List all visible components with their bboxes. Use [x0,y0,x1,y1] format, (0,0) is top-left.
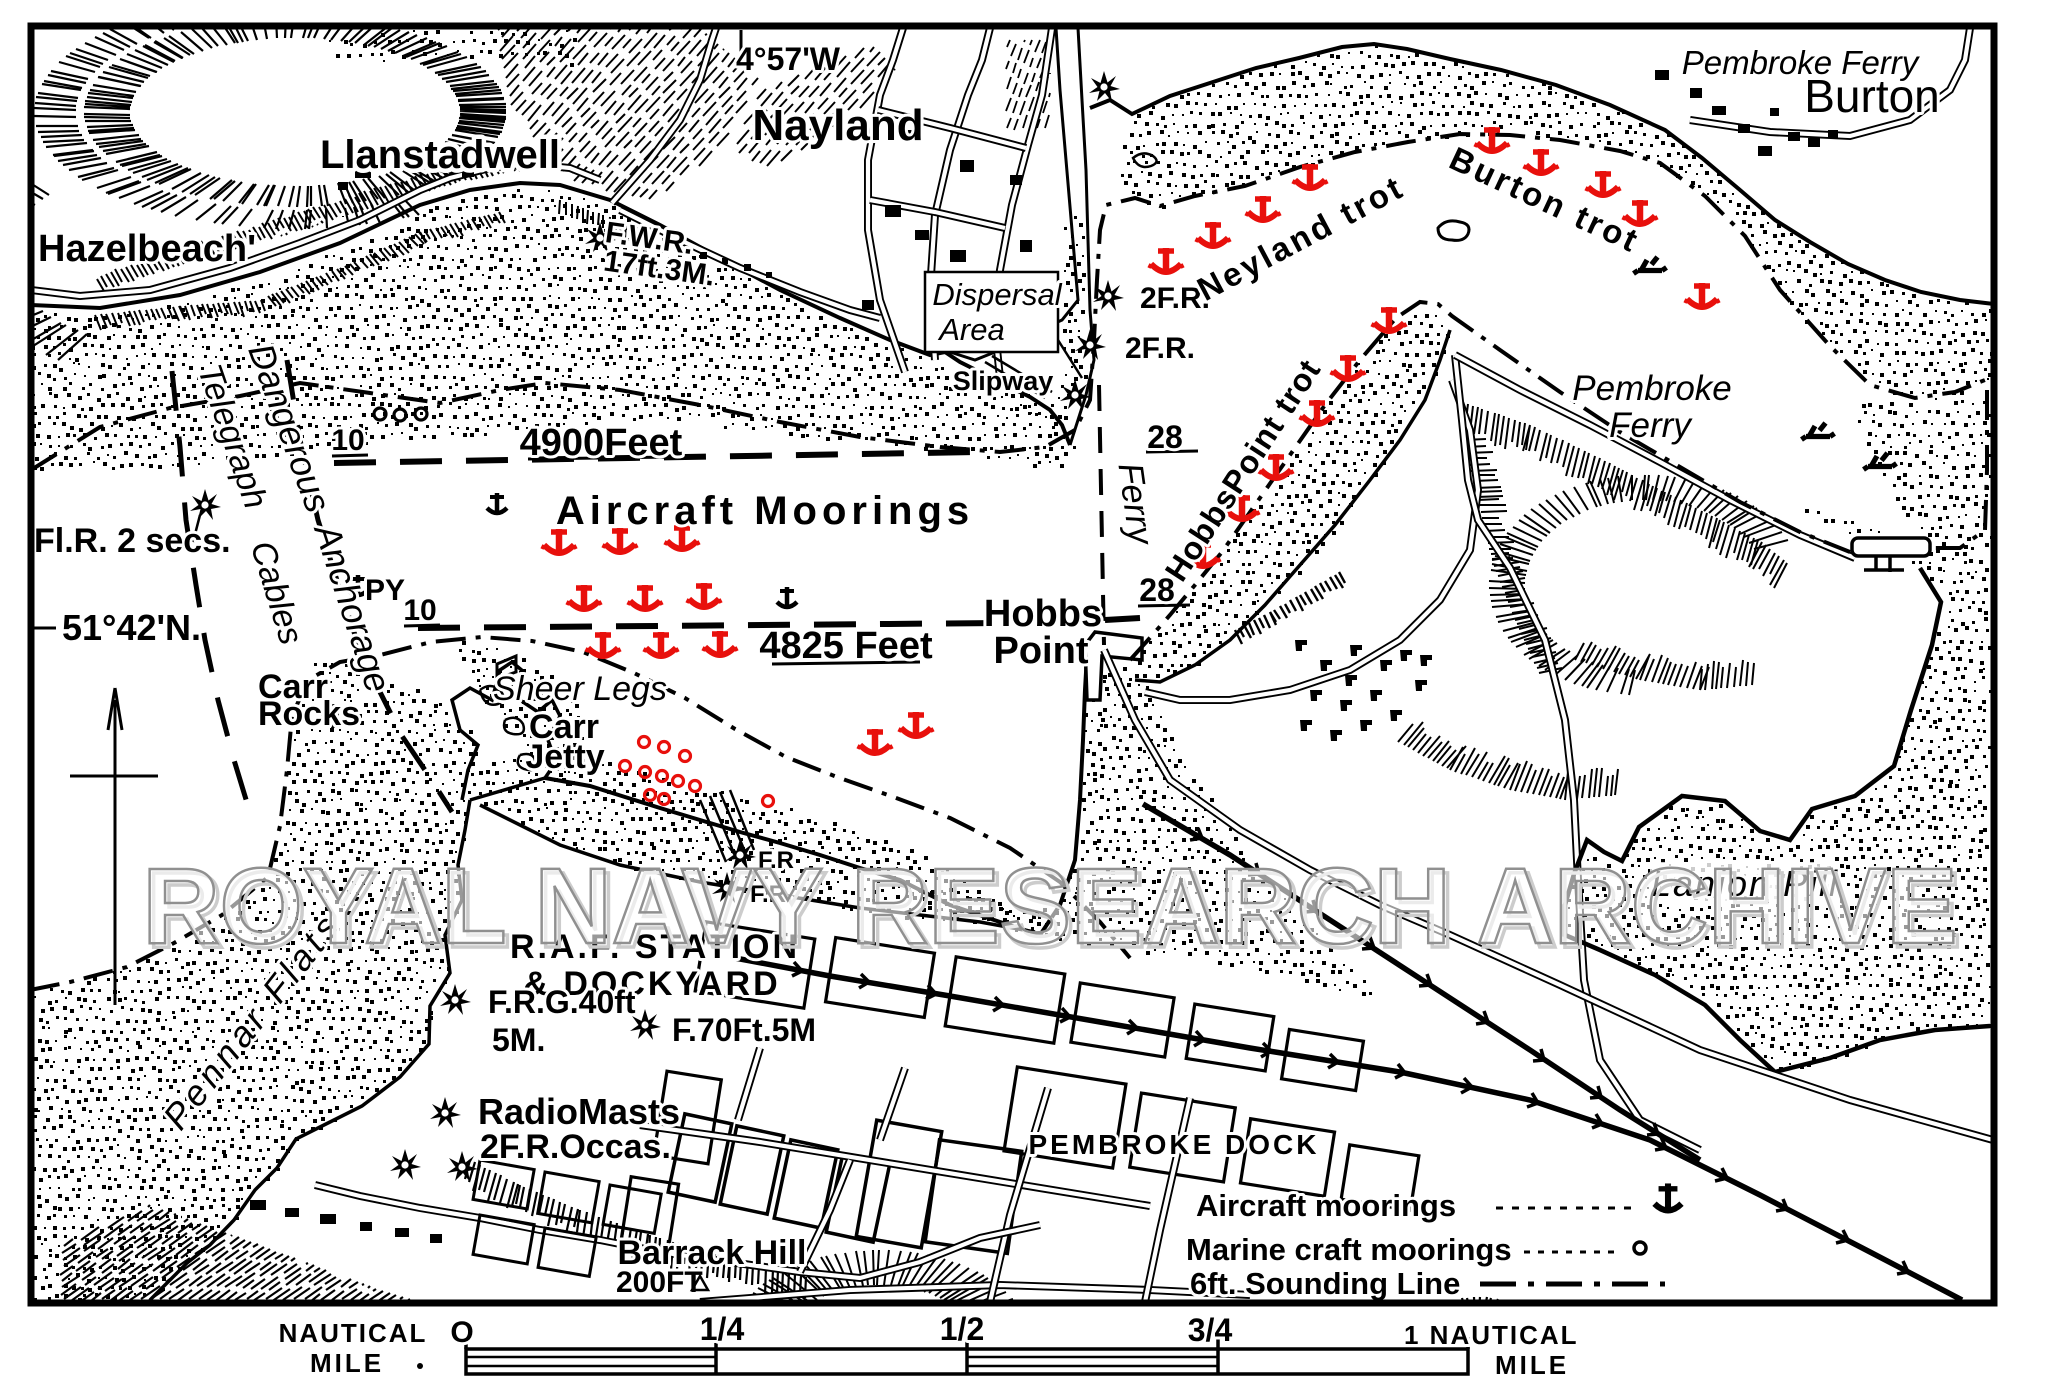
svg-text:Burton: Burton [1804,70,1940,122]
svg-text:MILE: MILE [1495,1350,1569,1380]
svg-text:4900Feet: 4900Feet [520,422,683,464]
svg-text:1 NAUTICAL: 1 NAUTICAL [1404,1320,1579,1350]
svg-text:Fl.R. 2 secs.: Fl.R. 2 secs. [34,522,231,560]
svg-text:28: 28 [1147,419,1183,455]
svg-text:1/4: 1/4 [700,1311,745,1347]
svg-text:F.70Ft.5M: F.70Ft.5M [672,1012,816,1048]
svg-text:200FT: 200FT [616,1266,703,1299]
svg-text:RadioMasts: RadioMasts [478,1091,680,1132]
svg-text:5M.: 5M. [492,1022,545,1058]
svg-text:Jetty: Jetty [525,738,604,776]
svg-text:F.R.G.40ft: F.R.G.40ft [488,984,636,1020]
svg-text:Pembroke: Pembroke [1572,369,1732,408]
svg-text:Area: Area [937,312,1004,347]
svg-text:Rocks: Rocks [258,695,360,733]
svg-text:Slipway: Slipway [953,366,1054,396]
svg-text:6ft. Sounding Line: 6ft. Sounding Line [1190,1266,1460,1301]
svg-text:10: 10 [403,594,436,627]
svg-text:Marine craft moorings: Marine craft moorings [1186,1232,1512,1267]
svg-text:PEMBROKE DOCK: PEMBROKE DOCK [1028,1129,1319,1160]
svg-text:Ferry: Ferry [1609,406,1693,445]
svg-text:4°57'W: 4°57'W [736,41,841,77]
svg-text:NAUTICAL: NAUTICAL [279,1318,428,1348]
svg-text:ROYAL NAVY RESEARCH ARCHIVE: ROYAL NAVY RESEARCH ARCHIVE [143,845,1958,966]
svg-text:3/4: 3/4 [1188,1312,1233,1348]
svg-text:2F.R.: 2F.R. [1125,332,1195,365]
svg-text:Hazelbeach': Hazelbeach' [38,228,256,270]
svg-text:4825 Feet: 4825 Feet [759,625,933,667]
svg-text:Llanstadwell: Llanstadwell [320,133,560,177]
svg-text:Hobbs: Hobbs [984,593,1102,635]
svg-text:1/2: 1/2 [940,1311,984,1347]
svg-text:MILE: MILE [310,1348,384,1378]
svg-text:28: 28 [1139,572,1175,608]
svg-text:Nayland: Nayland [752,101,923,150]
svg-text:O: O [450,1316,473,1349]
svg-text:Dispersal: Dispersal [932,277,1062,312]
svg-text:Aircraft Moorings: Aircraft Moorings [556,489,974,533]
svg-text:2F.R.Occas.: 2F.R.Occas. [480,1128,671,1166]
svg-text:Point: Point [994,630,1089,672]
svg-text:Aircraft moorings: Aircraft moorings [1196,1188,1456,1223]
svg-text:Sheer Legs: Sheer Legs [493,670,667,708]
svg-text:10: 10 [331,424,364,457]
svg-text:51°42'N.: 51°42'N. [62,607,201,648]
